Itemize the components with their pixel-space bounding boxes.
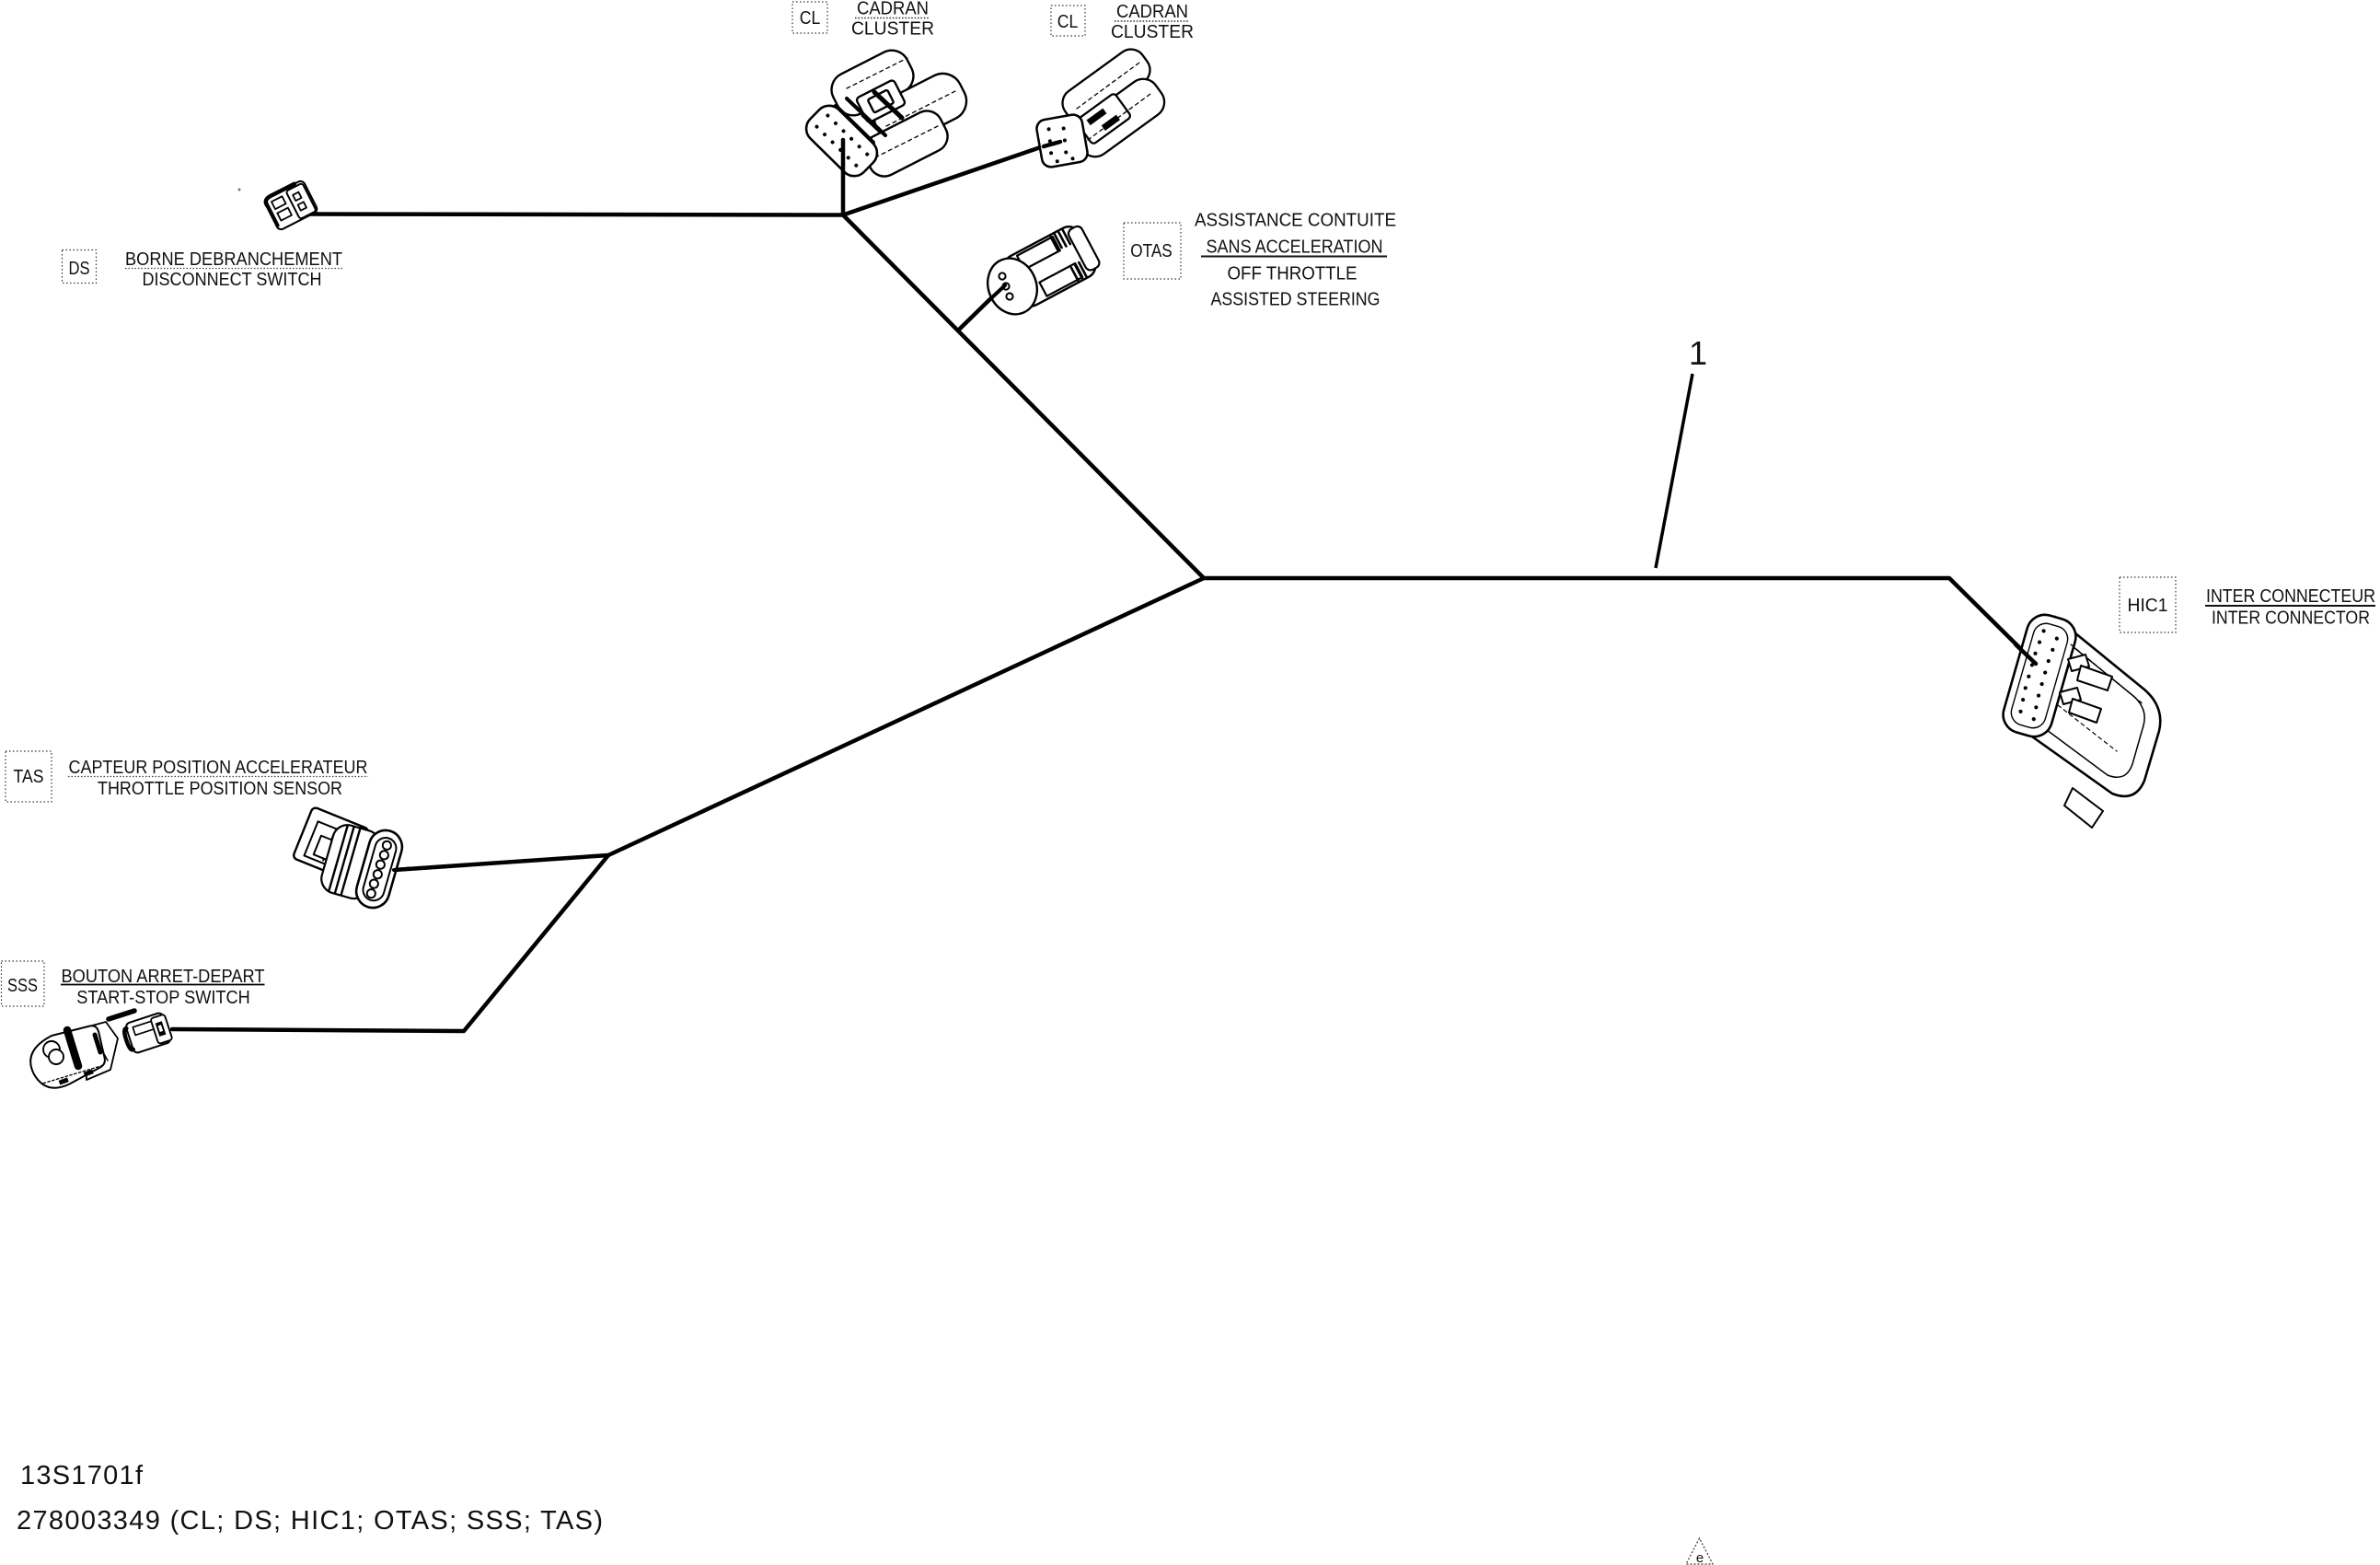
svg-text:SANS ACCELERATION: SANS ACCELERATION [1207,238,1383,258]
svg-text:278003349 (CL; DS; HIC1; OTAS;: 278003349 (CL; DS; HIC1; OTAS; SSS; TAS) [17,1506,603,1536]
svg-text:BORNE DEBRANCHEMENT: BORNE DEBRANCHEMENT [125,249,342,270]
svg-text:CAPTEUR POSITION ACCELERATEUR: CAPTEUR POSITION ACCELERATEUR [69,758,368,778]
svg-text:OTAS: OTAS [1130,241,1173,261]
svg-text:ASSISTANCE CONTUITE: ASSISTANCE CONTUITE [1195,211,1396,231]
svg-text:e: e [1696,1550,1704,1565]
svg-text:CLUSTER: CLUSTER [1111,22,1194,42]
svg-text:1: 1 [1689,334,1707,372]
svg-text:CADRAN: CADRAN [1116,2,1188,22]
svg-text:INTER CONNECTEUR: INTER CONNECTEUR [2206,586,2375,607]
svg-text:INTER CONNECTOR: INTER CONNECTOR [2212,609,2370,629]
svg-text:CL: CL [1057,12,1079,32]
svg-text:TAS: TAS [14,767,44,787]
svg-text:START-STOP SWITCH: START-STOP SWITCH [76,988,250,1008]
svg-text:THROTTLE POSITION SENSOR: THROTTLE POSITION SENSOR [98,779,342,799]
svg-text:13S1701f: 13S1701f [20,1461,144,1490]
svg-text:OFF THROTTLE: OFF THROTTLE [1228,264,1358,284]
svg-text:CLUSTER: CLUSTER [851,19,934,40]
svg-text:DISCONNECT SWITCH: DISCONNECT SWITCH [143,270,322,290]
svg-text:CADRAN: CADRAN [857,0,929,19]
svg-text:SSS: SSS [7,976,38,996]
svg-text:HIC1: HIC1 [2128,596,2168,616]
svg-text:ASSISTED STEERING: ASSISTED STEERING [1211,290,1381,310]
svg-text:DS: DS [69,259,90,279]
svg-text:CL: CL [800,8,821,29]
